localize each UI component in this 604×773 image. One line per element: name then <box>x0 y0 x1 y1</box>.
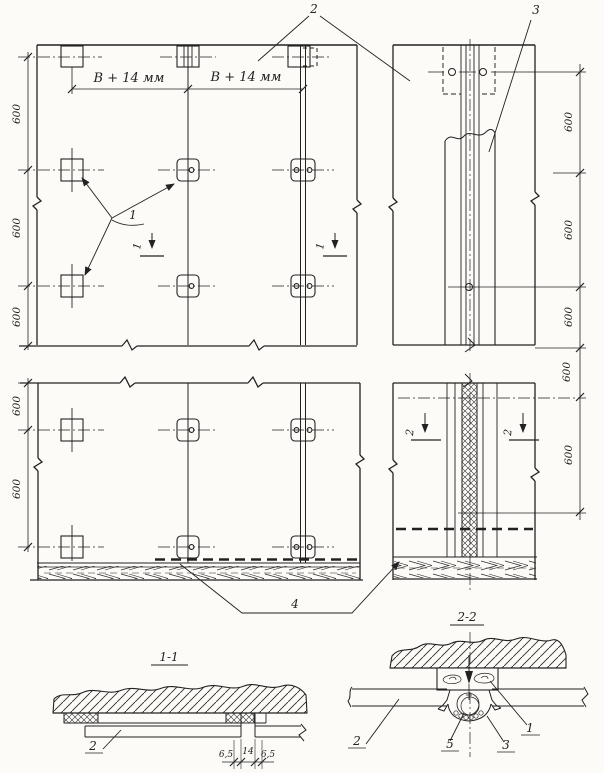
dim-chain-right <box>576 64 584 520</box>
cut-1-label-left: 1 <box>131 242 144 251</box>
concrete-slab-2 <box>390 638 566 668</box>
section-2-2 <box>348 625 588 757</box>
callout-2-s22-label: 2 <box>352 734 361 748</box>
callout-4-label: 4 <box>290 597 299 611</box>
fixing-plate-row1 <box>18 46 332 94</box>
dim-600-right-1: 600 <box>563 112 575 132</box>
panel-top-right-edge <box>389 39 586 352</box>
panel-bottom-left-plan <box>18 377 364 580</box>
section-1-1-title: 1-1 <box>159 650 178 664</box>
callout-3-s22-label: 3 <box>502 738 510 752</box>
fixing-plate-row4 <box>18 408 334 452</box>
panel-sheets <box>85 713 306 741</box>
dim-600-left-3: 600 <box>11 307 23 327</box>
dim-600-right-4: 600 <box>561 362 573 382</box>
dim-65-right: 6,5 <box>261 750 276 760</box>
dim-14: 14 <box>242 747 254 757</box>
dim-600-left-5: 600 <box>11 479 23 499</box>
callout-3-top-label: 3 <box>532 3 540 17</box>
technical-drawing: 1 1 1 В + 14 мм В + 14 мм 600 600 600 60… <box>0 0 604 773</box>
timber-strip-right <box>393 557 537 579</box>
concrete-slab <box>53 685 307 713</box>
dim-b14-label-left: В + 14 мм <box>93 71 165 86</box>
bedding-band <box>64 713 266 723</box>
callout-5-s22-label: 5 <box>446 737 454 751</box>
dim-65-left: 6,5 <box>219 750 234 760</box>
dim-600-left-4: 600 <box>11 396 23 416</box>
drawing-sheet: 1 1 1 В + 14 мм В + 14 мм 600 600 600 60… <box>0 0 604 773</box>
panel-top-left-plan <box>18 45 361 350</box>
dim-600-left-2: 600 <box>11 218 23 238</box>
callout-1-label: 1 <box>129 208 137 222</box>
dim-600-right-2: 600 <box>563 220 575 240</box>
cut-2-label-left: 2 <box>404 428 417 437</box>
fixing-plate-row3 <box>18 264 334 308</box>
dim-600-right-5: 600 <box>563 445 575 465</box>
cut-2-label-right: 2 <box>502 428 515 437</box>
callout-2-top-label: 2 <box>309 2 318 16</box>
callout-1-leaders <box>82 178 174 275</box>
callout-3-top-leader <box>489 20 531 152</box>
cut-1-label-right: 1 <box>314 242 327 251</box>
callout-1-s22-label: 1 <box>526 721 534 735</box>
fixing-plate-row2 <box>18 148 334 192</box>
callout-2-s11-label: 2 <box>88 739 97 753</box>
fixing-plate-row5 <box>18 525 334 561</box>
dim-600-left-1: 600 <box>11 104 23 124</box>
section-2-2-title: 2-2 <box>456 610 476 624</box>
section-2-2-callout-leaders <box>348 681 540 752</box>
panel-bottom-right-edge <box>389 373 586 592</box>
dim-600-right-3: 600 <box>563 307 575 327</box>
dim-b14-label-right: В + 14 мм <box>210 70 282 85</box>
